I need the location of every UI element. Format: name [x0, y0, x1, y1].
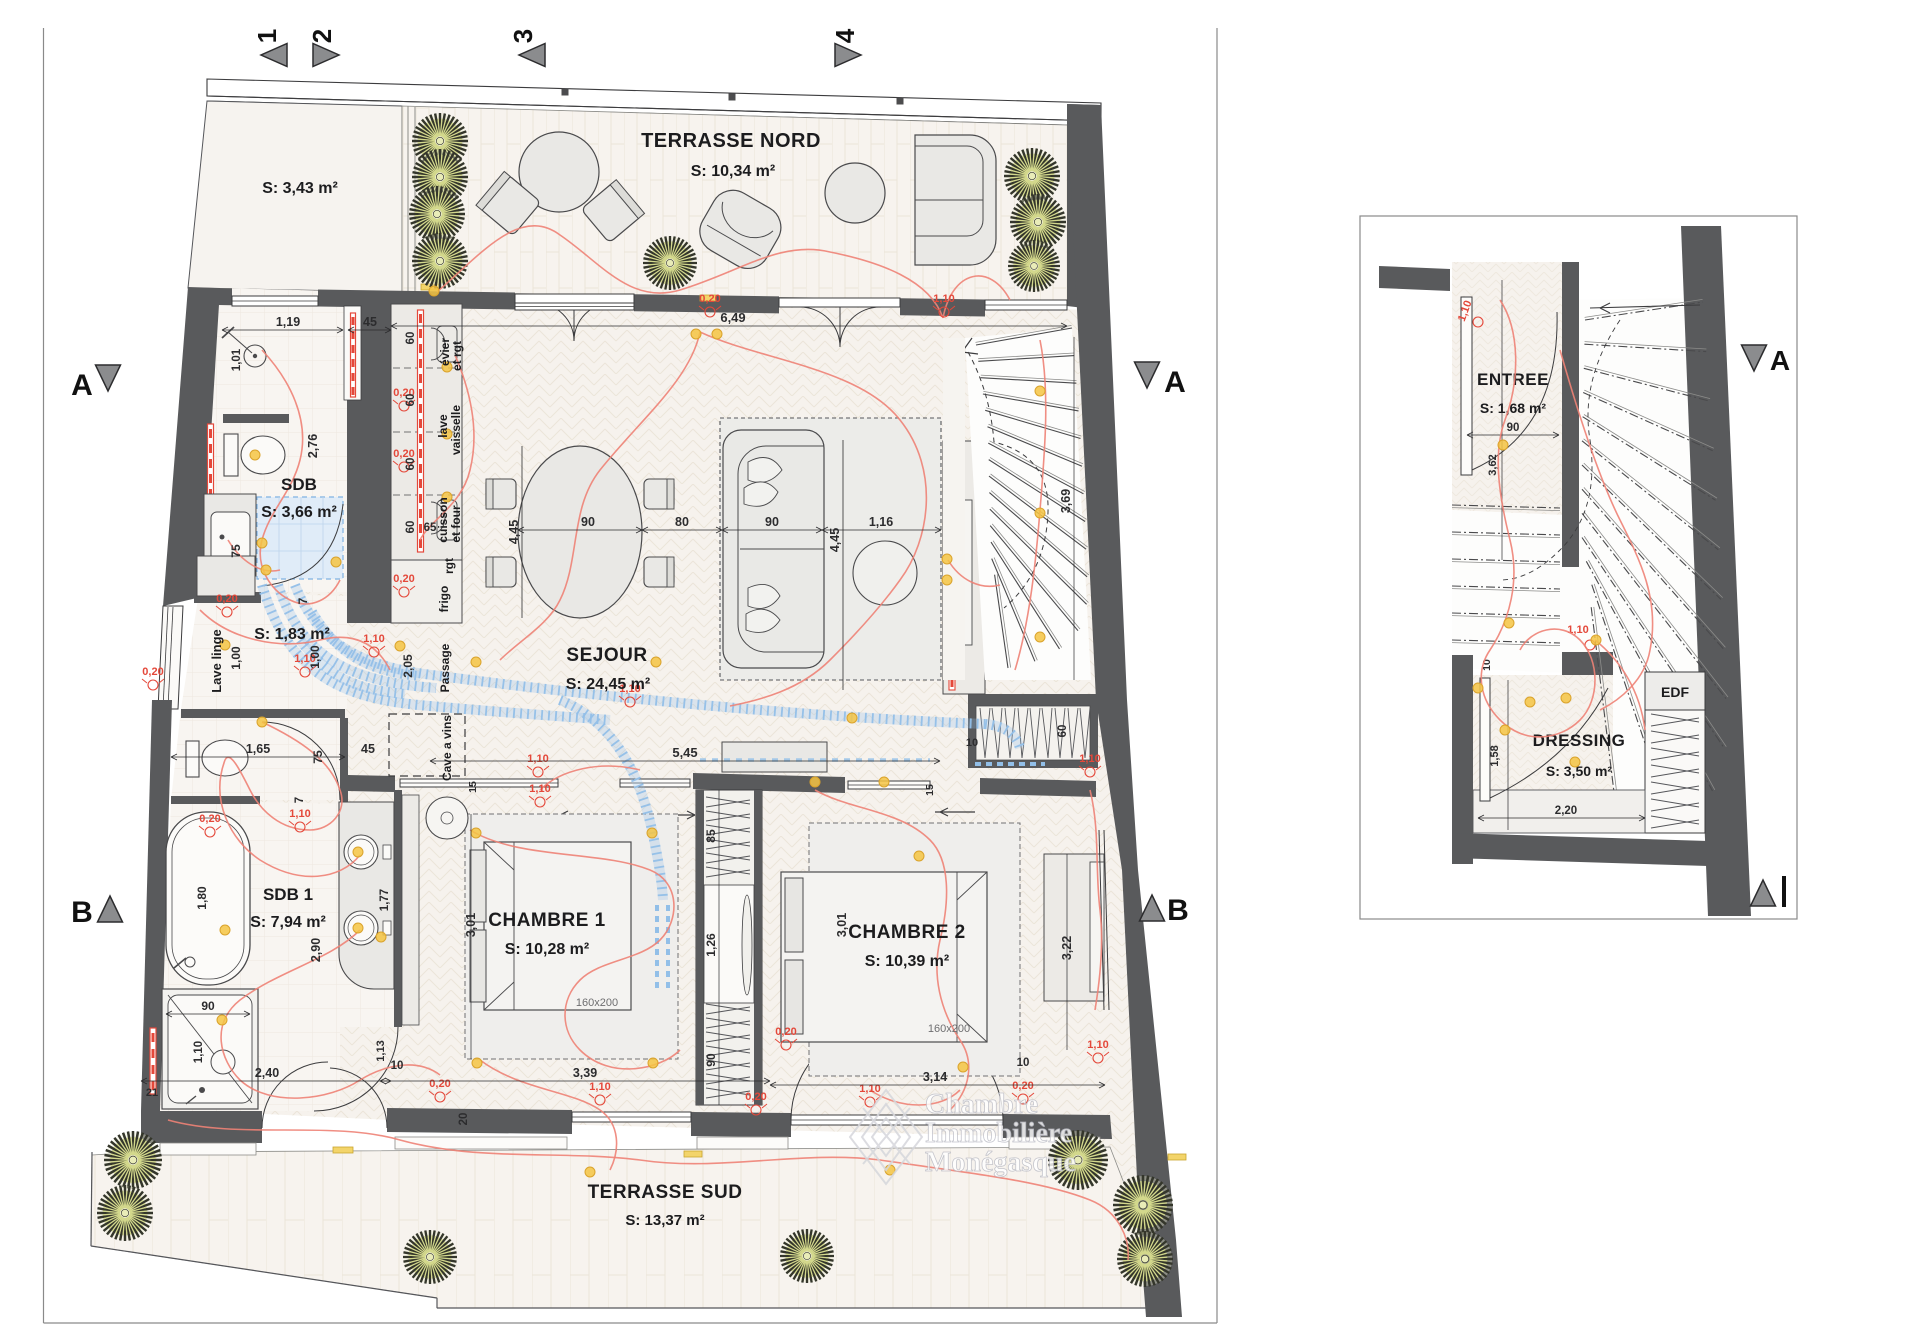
svg-text:A: A [1164, 366, 1186, 399]
svg-text:60: 60 [405, 458, 417, 471]
svg-text:S: 7,94 m²: S: 7,94 m² [250, 914, 326, 931]
svg-text:2,40: 2,40 [255, 1066, 279, 1080]
svg-text:Cave a vins: Cave a vins [440, 715, 454, 781]
svg-text:15: 15 [467, 781, 479, 793]
svg-text:4,45: 4,45 [828, 528, 842, 552]
svg-text:2,05: 2,05 [401, 654, 415, 678]
svg-text:1,10: 1,10 [1567, 624, 1588, 636]
svg-text:EDF: EDF [1661, 684, 1689, 700]
svg-text:7: 7 [294, 797, 306, 803]
svg-text:et rgt: et rgt [450, 341, 464, 371]
svg-text:S: 24,45 m²: S: 24,45 m² [566, 676, 650, 693]
svg-text:21: 21 [146, 1087, 158, 1099]
svg-text:80: 80 [675, 515, 689, 529]
svg-text:7: 7 [296, 597, 310, 604]
svg-text:S: 3,43 m²: S: 3,43 m² [262, 180, 338, 197]
svg-text:Chambre: Chambre [925, 1089, 1038, 1120]
svg-text:et four: et four [449, 505, 463, 543]
svg-text:S: 1,83 m²: S: 1,83 m² [254, 626, 330, 643]
svg-text:90: 90 [581, 515, 595, 529]
svg-text:0,20: 0,20 [216, 593, 237, 605]
svg-text:A: A [1770, 345, 1790, 376]
svg-text:3,01: 3,01 [835, 913, 849, 937]
svg-text:1,10: 1,10 [529, 783, 550, 795]
svg-text:1,58: 1,58 [1489, 745, 1501, 766]
svg-text:60: 60 [405, 521, 417, 534]
svg-text:vaisselle: vaisselle [449, 405, 463, 455]
svg-text:3,14: 3,14 [923, 1070, 947, 1084]
svg-text:45: 45 [363, 315, 377, 329]
svg-text:1,01: 1,01 [231, 348, 243, 371]
svg-text:Lave linge: Lave linge [209, 629, 224, 693]
svg-text:20: 20 [458, 1113, 470, 1126]
svg-text:2,90: 2,90 [309, 938, 323, 962]
svg-text:15: 15 [924, 784, 936, 796]
svg-text:45: 45 [361, 742, 375, 756]
svg-text:1,10: 1,10 [193, 1041, 205, 1063]
svg-text:10: 10 [391, 1060, 404, 1072]
svg-text:1,10: 1,10 [1087, 1039, 1108, 1051]
svg-text:0,20: 0,20 [775, 1026, 796, 1038]
svg-text:0,20: 0,20 [199, 813, 220, 825]
svg-text:TERRASSE NORD: TERRASSE NORD [641, 130, 821, 152]
svg-text:1,00: 1,00 [229, 646, 243, 670]
svg-text:4: 4 [830, 28, 860, 43]
svg-text:SDB: SDB [281, 475, 317, 494]
svg-text:Passage: Passage [438, 643, 452, 692]
svg-text:1,13: 1,13 [375, 1040, 387, 1061]
svg-text:90: 90 [765, 515, 779, 529]
svg-text:S: 10,28 m²: S: 10,28 m² [505, 941, 589, 958]
svg-text:1,10: 1,10 [527, 753, 548, 765]
svg-text:90: 90 [201, 999, 215, 1013]
svg-text:0,20: 0,20 [699, 293, 720, 305]
svg-text:Immobilière: Immobilière [925, 1118, 1072, 1149]
svg-text:65: 65 [424, 522, 437, 534]
svg-text:1,80: 1,80 [195, 886, 209, 910]
svg-text:10: 10 [1017, 1057, 1030, 1069]
svg-text:ENTREE: ENTREE [1477, 370, 1549, 389]
svg-text:DRESSING: DRESSING [1533, 731, 1626, 750]
svg-text:2,20: 2,20 [1555, 805, 1577, 817]
svg-text:0,20: 0,20 [142, 666, 163, 678]
svg-text:60: 60 [405, 332, 417, 345]
svg-text:75: 75 [229, 544, 243, 558]
svg-text:TERRASSE SUD: TERRASSE SUD [588, 1182, 743, 1203]
svg-text:SDB 1: SDB 1 [263, 885, 313, 904]
svg-text:5,45: 5,45 [672, 745, 697, 760]
svg-text:1,77: 1,77 [379, 889, 391, 911]
svg-text:S: 13,37 m²: S: 13,37 m² [625, 1212, 704, 1229]
svg-text:3,39: 3,39 [573, 1066, 597, 1080]
svg-text:60: 60 [1057, 725, 1069, 738]
svg-text:75: 75 [311, 750, 325, 764]
svg-text:90: 90 [1507, 422, 1520, 434]
svg-text:1,10: 1,10 [589, 1081, 610, 1093]
svg-text:0,20: 0,20 [429, 1078, 450, 1090]
svg-text:60: 60 [405, 394, 417, 407]
svg-text:S: 10,39 m²: S: 10,39 m² [865, 953, 949, 970]
svg-text:10: 10 [966, 737, 978, 749]
svg-text:S: 3,66 m²: S: 3,66 m² [261, 504, 337, 521]
svg-text:1,10: 1,10 [289, 808, 310, 820]
svg-text:85: 85 [704, 829, 718, 843]
svg-text:S: 1,68 m²: S: 1,68 m² [1480, 400, 1546, 416]
svg-text:3,62: 3,62 [1487, 454, 1499, 475]
svg-text:1,10: 1,10 [363, 633, 384, 645]
svg-text:B: B [71, 896, 93, 929]
svg-text:1,10: 1,10 [1079, 753, 1100, 765]
svg-text:cuisson: cuisson [436, 497, 450, 542]
svg-text:160x200: 160x200 [576, 997, 618, 1009]
svg-text:160x200: 160x200 [928, 1023, 970, 1035]
svg-text:1,10: 1,10 [933, 293, 954, 305]
svg-text:SEJOUR: SEJOUR [566, 645, 647, 666]
svg-text:CHAMBRE 1: CHAMBRE 1 [488, 910, 605, 931]
svg-text:lave: lave [436, 414, 450, 438]
svg-text:3,69: 3,69 [1059, 489, 1073, 513]
svg-text:A: A [71, 369, 93, 402]
svg-text:1,00: 1,00 [308, 645, 322, 669]
svg-text:90: 90 [704, 1053, 718, 1067]
svg-text:1,26: 1,26 [704, 933, 718, 957]
svg-text:frigo: frigo [437, 586, 451, 613]
svg-text:CHAMBRE 2: CHAMBRE 2 [848, 922, 965, 943]
svg-text:Monégasque: Monégasque [925, 1147, 1076, 1178]
svg-text:B: B [1167, 894, 1189, 927]
svg-text:1,19: 1,19 [276, 315, 300, 329]
svg-text:0,20: 0,20 [745, 1091, 766, 1103]
svg-text:1,16: 1,16 [869, 515, 893, 529]
svg-text:S: 10,34 m²: S: 10,34 m² [691, 163, 775, 180]
svg-text:2: 2 [307, 29, 337, 43]
svg-text:6,49: 6,49 [720, 310, 745, 325]
svg-text:4,45: 4,45 [507, 520, 521, 544]
svg-text:3: 3 [508, 29, 538, 43]
svg-text:1: 1 [252, 29, 282, 43]
svg-text:2,76: 2,76 [306, 434, 320, 458]
svg-text:rgt: rgt [442, 558, 456, 574]
svg-text:0,20: 0,20 [393, 573, 414, 585]
svg-text:1,65: 1,65 [246, 742, 270, 756]
